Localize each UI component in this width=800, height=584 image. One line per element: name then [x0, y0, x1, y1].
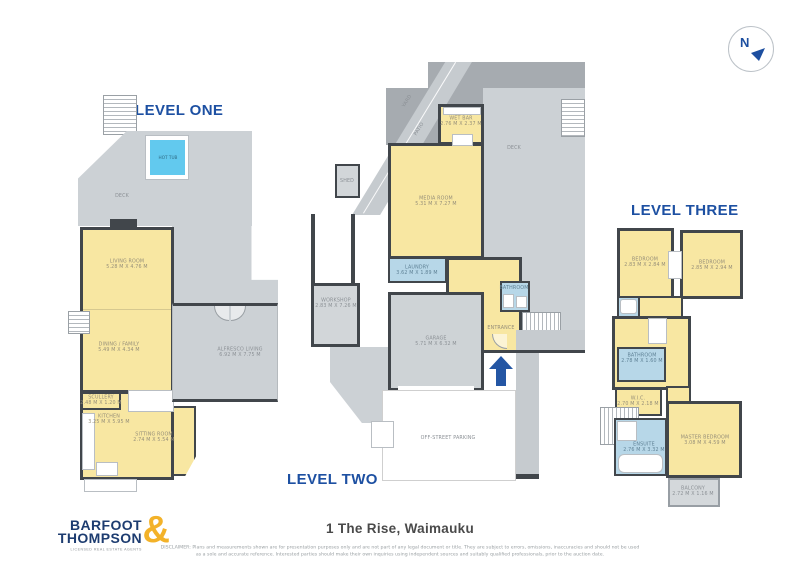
- parking-box: [371, 421, 394, 448]
- floor-plan-canvas: LEVEL ONE HOT TUB DECK LIVING ROOM 5.28 …: [0, 0, 800, 584]
- side-path: [516, 353, 539, 475]
- logo-tagline: LICENSED REAL ESTATE AGENTS: [71, 548, 142, 552]
- room-label-dining-family: DINING / FAMILY 5.49 M X 4.34 M: [98, 341, 139, 352]
- room-label-bedroom-left: BEDROOM 2.83 M X 2.84 M: [624, 256, 665, 267]
- level-one-title: LEVEL ONE: [135, 102, 223, 119]
- stove: [96, 462, 118, 476]
- room-label-hot-tub: HOT TUB: [158, 155, 177, 160]
- wall-side-end: [516, 474, 539, 479]
- logo-ampersand: &: [143, 511, 170, 549]
- room-living-dining: [80, 227, 174, 393]
- room-label-media-room: MEDIA ROOM 5.31 M X 7.27 M: [415, 195, 456, 206]
- room-label-deck-1: DECK: [115, 193, 129, 199]
- deck-level-one-side: [172, 226, 278, 303]
- disclaimer-line-2: as a sole and accurate reference. Intere…: [196, 552, 604, 557]
- room-label-kitchen: KITCHEN 3.25 M X 5.95 M: [88, 413, 129, 424]
- logo-word-thompson: THOMPSON: [58, 530, 142, 546]
- room-label-bedroom-right: BEDROOM 2.85 M X 2.94 M: [691, 259, 732, 270]
- room-label-ensuite: ENSUITE 2.76 M X 3.32 M: [623, 441, 664, 452]
- room-label-bathroom-l2: BATHROOM: [499, 285, 528, 291]
- compass-needle-icon: [750, 48, 766, 62]
- room-sitting-extension: [172, 406, 196, 476]
- walkway: [330, 347, 388, 423]
- level-three-title: LEVEL THREE: [631, 202, 738, 219]
- room-label-wic: W.I.C. 2.70 M X 2.18 M: [617, 395, 658, 406]
- level-two-title: LEVEL TWO: [287, 471, 378, 488]
- bathroom-basin: [516, 296, 527, 308]
- room-label-alfresco-living: ALFRESCO LIVING 6.92 M X 7.75 M: [217, 346, 262, 357]
- bathroom-shower: [503, 294, 514, 308]
- ensuite-tub: [618, 454, 663, 473]
- room-label-sitting-room: SITTING ROOM 2.74 M X 5.54 M: [133, 431, 174, 442]
- porch-step: [84, 479, 137, 492]
- room-label-bathroom-l3: BATHROOM 2.78 M X 1.60 M: [621, 352, 662, 363]
- closet: [668, 251, 682, 279]
- wet-bar-bench: [443, 107, 481, 115]
- side-path-top: [516, 330, 585, 352]
- entry-arrow-icon: [488, 356, 514, 391]
- room-label-garage: GARAGE 5.71 M X 6.32 M: [415, 335, 456, 346]
- hot-tub: HOT TUB: [149, 139, 186, 176]
- room-label-balcony: BALCONY 2.72 M X 1.16 M: [672, 485, 713, 496]
- barfoot-thompson-logo: BARFOOT THOMPSON & LICENSED REAL ESTATE …: [36, 517, 168, 567]
- wall-divider: [83, 309, 171, 310]
- compass: N: [728, 26, 774, 72]
- stairs-deck: [561, 99, 585, 137]
- ensuite-shower: [617, 421, 637, 441]
- room-label-parking: OFF-STREET PARKING: [421, 435, 476, 441]
- room-label-deck-2: DECK: [507, 145, 521, 151]
- room-label-scullery: SCULLERY 2.48 M X 1.20 M: [80, 394, 121, 405]
- room-label-master-bedroom: MASTER BEDROOM 3.08 M X 4.59 M: [681, 434, 730, 445]
- linen-cupboard: [648, 318, 667, 344]
- utility-nook: [128, 390, 174, 412]
- room-label-entrance: ENTRANCE: [487, 325, 514, 331]
- room-label-wet-bar: WET BAR 2.76 M X 2.37 M: [440, 115, 481, 126]
- stairs-level-one-left: [68, 311, 90, 334]
- room-label-workshop: WORKSHOP 2.83 M X 7.26 M: [315, 297, 356, 308]
- bath-tub-top: [620, 299, 637, 314]
- wall-left-inner: [351, 214, 355, 285]
- room-label-laundry: LAUNDRY 3.62 M X 1.89 M: [396, 264, 437, 275]
- wet-bar-counter: [452, 134, 473, 146]
- stairs-level-one-top: [103, 95, 137, 135]
- wall-left-outer: [311, 214, 315, 285]
- room-label-shed: SHED: [340, 178, 354, 184]
- room-workshop: [311, 283, 360, 347]
- disclaimer-line-1: DISCLAIMER: Plans and measurements shown…: [161, 545, 640, 550]
- compass-north-label: N: [740, 35, 749, 50]
- room-label-living-room: LIVING ROOM 5.28 M X 4.76 M: [106, 258, 147, 269]
